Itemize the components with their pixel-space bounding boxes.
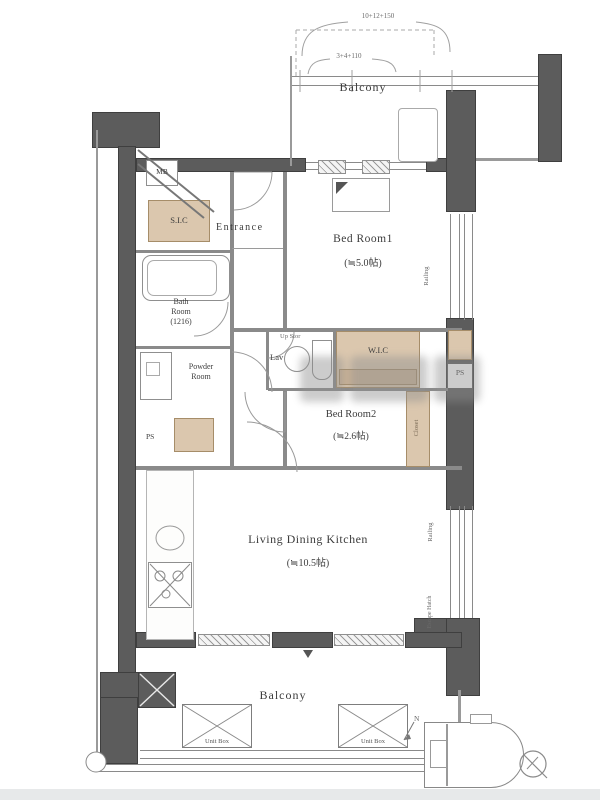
kitchen-sink [156, 526, 184, 550]
bath-label: Bath Room (1216) [150, 297, 212, 327]
balcony-bottom-label: Balcony [238, 688, 328, 703]
dim-outer-label: 10+12+150 [348, 12, 408, 21]
bedroom1-name-label: Bed Room1 [300, 232, 426, 246]
railing-upper-label: Railing [423, 246, 433, 306]
site-marker-circle [86, 752, 106, 772]
watermark-block-1 [300, 356, 344, 402]
bath-label-3: (1216) [170, 317, 191, 326]
dim-inner-label: 3+4+110 [320, 52, 378, 61]
bedroom2-size-label: (≒2.6帖) [292, 432, 410, 444]
entrance-door-arc [234, 172, 272, 210]
watermark-block-3 [434, 356, 480, 402]
plan-linework [0, 0, 600, 800]
bath-label-1: Bath [173, 297, 188, 306]
sic-label: S.I.C [148, 215, 210, 226]
floor-plan: Balcony 10+12+150 3+4+110 MB S.I.C Entra… [0, 0, 600, 800]
stove-symbol [150, 564, 190, 606]
bedroom2-door-arc [245, 392, 285, 432]
ldk-name-label: Living Dining Kitchen [218, 532, 398, 547]
entrance-label: Entrance [216, 222, 264, 235]
ldk-size-label: (≒10.5帖) [218, 558, 398, 571]
unit-box-left-label: Unit Box [182, 738, 252, 746]
stair-diagonal-1 [138, 150, 214, 212]
mb-label: MB [146, 167, 178, 176]
vent-triangle-icon [303, 650, 313, 658]
watermark-block-2 [350, 356, 428, 402]
up-stor-label: Up Stor [280, 333, 300, 341]
powder-label-1: Powder [189, 362, 213, 371]
north-mark-label: N [414, 714, 419, 723]
bath-label-2: Room [171, 307, 191, 316]
escape-hatch-label: Escape Hatch [427, 577, 437, 647]
bedroom2-name-label: Bed Room2 [292, 408, 410, 421]
north-compass-icon [520, 751, 547, 778]
powder-door-arc [232, 352, 272, 392]
unit-box-right-label: Unit Box [338, 738, 408, 746]
bedroom2-closet-label: Closet [413, 403, 423, 453]
wic-label: W.I.C [336, 345, 420, 356]
ac-triangle-icon [336, 182, 348, 194]
powder-label: Powder Room [172, 362, 230, 382]
powder-label-2: Room [191, 372, 211, 381]
railing-lower-label: Railing [427, 502, 437, 562]
lav-label: Lav [270, 352, 283, 363]
balcony-top-label: Balcony [318, 80, 408, 95]
dark-box-cross [140, 674, 174, 706]
ps-left-label: PS [146, 432, 154, 441]
bedroom1-size-label: (≒5.0帖) [300, 258, 426, 271]
